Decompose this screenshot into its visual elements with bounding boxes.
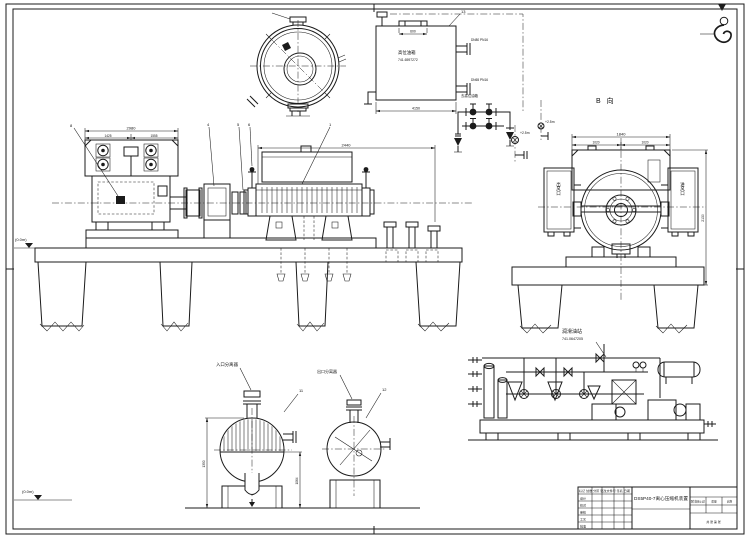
fold-mark-triangle	[718, 4, 726, 11]
sign-row-design: 设计	[580, 496, 586, 501]
oil-funnel	[506, 132, 514, 140]
oil-station-valves	[520, 354, 605, 399]
side-cooler-right	[668, 168, 698, 232]
valve-icon	[470, 123, 477, 130]
dim-tank-length: 4150	[412, 107, 420, 111]
oil-station-code: 741.0647205	[562, 337, 583, 341]
drawing-title: DS5P40-7离心压缩机装置	[634, 495, 688, 502]
sheet-count: 共 张 第 张	[706, 519, 721, 524]
callout-13: 13	[461, 9, 466, 14]
oil-filter	[508, 382, 522, 400]
oil-tank-code: 741.6597272	[398, 58, 418, 62]
callout-4: 4	[207, 122, 210, 127]
elev-note-a: +2.5m	[520, 131, 530, 135]
dim-compressor-length: 2440	[342, 143, 352, 148]
valve-icon	[486, 123, 493, 130]
callout-8: 8	[70, 123, 73, 128]
side-cooler-left	[544, 168, 574, 232]
level-mark-bottom: (0.0m)	[22, 489, 34, 494]
junction-box	[124, 147, 138, 156]
lifting-lug	[282, 42, 291, 51]
callout-5: 5	[237, 122, 240, 127]
drawing-canvas: 600 高位油箱 741.6597272 DN80 PN16 DN65 PN16…	[0, 0, 748, 538]
casing-end-view	[247, 13, 346, 116]
dim-viewb-height: 2130	[701, 214, 705, 222]
crane-hook-icon	[700, 17, 731, 42]
dim-sep-dia: 1064	[295, 477, 299, 484]
pump-motor	[648, 400, 676, 420]
scale-label: 比例	[727, 500, 733, 504]
viewb-foundation-slab	[512, 267, 704, 285]
cooler-right-text: 进风口	[680, 181, 686, 197]
separator-pedestal	[330, 480, 380, 508]
main-elevation-view: 2980 1425 1555 2440 8 4 5 6 1 (0.0m)	[14, 122, 472, 331]
sign-row-process: 工艺	[580, 517, 586, 522]
sheet-border	[6, 4, 744, 534]
dim-viewb-width: 1840	[617, 132, 627, 137]
revision-header: 标记 处数 分区 更改文件号 签名 日期	[579, 489, 630, 493]
callout-1: 1	[329, 122, 332, 127]
oil-pump	[592, 404, 616, 420]
title-block: 标记 处数 分区 更改文件号 签名 日期 设计 校对 审核 工艺 批准 DS5P…	[578, 487, 737, 529]
level-mark-mid: (0.0m)	[15, 237, 27, 242]
manhole	[399, 21, 427, 26]
dim-tank-manhole: 600	[410, 30, 416, 34]
inlet-separator-view: 入口分离器 11 1350 1064	[202, 361, 304, 508]
oil-tank: 600 高位油箱 741.6597272 DN80 PN16 DN65 PN16…	[364, 9, 488, 114]
separator-hatch	[224, 416, 280, 451]
valve-icon	[470, 109, 477, 116]
drawing-sheet: 600 高位油箱 741.6597272 DN80 PN16 DN65 PN16…	[0, 0, 748, 538]
sign-row-approve: 批准	[580, 524, 586, 529]
dim-motor-seg-a: 1425	[104, 134, 111, 138]
ground-levels: (0.0m)	[14, 489, 420, 508]
dim-viewb-half-a: 1020	[592, 141, 599, 145]
oil-station-skid	[480, 420, 704, 433]
view-b-label: B 向	[596, 96, 616, 105]
callout-6: 6	[248, 122, 251, 127]
revision-grid	[578, 487, 632, 529]
foundation-slab	[35, 248, 462, 262]
sign-row-check: 校对	[580, 503, 586, 508]
outlet-separator-label: 出口分离器	[317, 368, 337, 374]
lube-oil-station: 润滑油站 741.0647205	[468, 328, 718, 440]
oil-station-name: 润滑油站	[562, 328, 582, 335]
info-grid	[690, 497, 737, 513]
oil-return-manifold: 去高位油箱 +2.5m	[390, 14, 555, 152]
stage-mark-label: 阶段标记	[691, 500, 705, 504]
tank-nozzle-spec-1: DN80 PN16	[471, 38, 488, 42]
oil-funnel	[454, 138, 462, 146]
dim-sep-height: 1350	[202, 460, 206, 467]
weight-label: 质量	[711, 500, 717, 504]
compressor-top-casing	[262, 152, 352, 182]
breather-vent	[377, 12, 387, 17]
dim-motor-width: 2980	[127, 126, 137, 131]
sign-row-review: 审核	[580, 510, 586, 515]
elev-note-b: +2.5m	[545, 120, 555, 124]
inlet-separator-label: 入口分离器	[216, 361, 239, 368]
cooler-left-text: 出风口	[556, 181, 562, 197]
dim-viewb-half-b: 1020	[641, 141, 648, 145]
anchor-bolts	[281, 248, 438, 274]
to-tank-note: 去高位油箱	[461, 93, 479, 98]
outlet-separator-view: 出口分离器 12	[317, 368, 390, 508]
tank-nozzle-spec-2: DN65 PN16	[471, 78, 488, 82]
dim-motor-seg-b: 1555	[150, 134, 157, 138]
motor-body	[92, 176, 170, 222]
oil-tank-name: 高位油箱	[398, 49, 416, 56]
valve-icon	[486, 109, 493, 116]
callout-12: 12	[382, 387, 387, 392]
oil-station-stubs	[468, 357, 482, 407]
compressor-fins	[256, 187, 362, 213]
callout-11: 11	[299, 388, 304, 393]
